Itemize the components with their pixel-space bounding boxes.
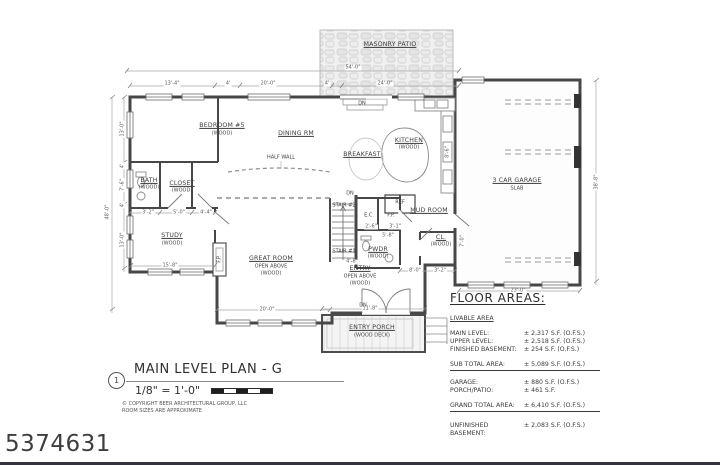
floor-areas-row: UPPER LEVEL: ± 2,518 S.F. (O.F.S.) [450,338,630,346]
room-label-masonry-patio: MASONRY PATIO [364,42,417,48]
dim-label: 38'-8" [595,173,600,190]
fa-value: ± 2,083 S.F. (O.F.S.) [524,422,585,438]
stair1-note: STAIR #1 [332,250,355,255]
title-block: 1 MAIN LEVEL PLAN - G 1/8" = 1'-0" © COP… [108,362,358,420]
fa-value: ± 880 S.F. (O.F.S.) [524,379,579,387]
fa-label: FINISHED BASEMENT: [450,346,524,354]
floor-note: (WOOD) [172,189,193,194]
approx-note: ROOM SIZES ARE APPROXIMATE [122,408,202,414]
floor-note: (WOOD) [368,255,389,260]
stair2-note: STAIR #2 [332,204,355,209]
floor-areas-row: MAIN LEVEL: ± 2,317 S.F. (O.F.S.) [450,330,630,338]
floor-note: SLAB [511,187,524,192]
floor-note: (WOOD) [399,146,420,151]
detail-number-circle: 1 [108,372,125,389]
fa-value: ± 2,317 S.F. (O.F.S.) [524,330,585,338]
copyright-line: © COPYRIGHT BEER ARCHITECTURAL GROUP, LL… [122,401,247,407]
dim-label: 7'-0" [461,234,466,248]
fa-value: ± 461 S.F. [524,387,555,395]
title-underline [126,381,344,382]
floor-areas-row: GARAGE: ± 880 S.F. (O.F.S.) [450,379,630,387]
dn-note: DN [346,192,354,197]
floor-note: (WOOD) [261,272,282,277]
dim-label: 4'-8" [345,260,359,265]
floor-areas-row: FINISHED BASEMENT: ± 254 S.F. (O.F.S.) [450,346,630,354]
fa-label: UNFINISHED BASEMENT: [450,422,524,438]
fa-value: ± 6,410 S.F. (O.F.S.) [524,402,585,410]
room-label-breakfast: BREAKFAST [343,152,380,158]
floor-note: (WOOD) [162,242,183,247]
floor-areas-grand-total-row: GRAND TOTAL AREA: ± 6,410 S.F. (O.F.S.) [450,402,600,412]
ec-note: E.C. [364,214,374,219]
dim-label: 13'-4" [163,82,180,87]
room-label-dining: DINING RM [278,131,314,137]
room-label-closet: CLOSET [169,181,194,187]
dim-label: 5'-0" [172,211,186,216]
dim-label: 3'-2" [433,269,447,274]
dim-label: 8'-6" [446,145,451,159]
fp-closet-note: F.P. [387,214,395,219]
dim-label: 4' [121,202,126,209]
fa-label: UPPER LEVEL: [450,338,524,346]
floor-note: (WOOD) [350,282,371,287]
open-above-note: OPEN ABOVE [255,265,288,270]
room-label-entry-porch: ENTRY PORCH [349,325,395,331]
plan-scale: 1/8" = 1'-0" [135,384,200,397]
dn-note: DN [358,102,366,107]
fa-value: ± 5,089 S.F. (O.F.S.) [524,361,585,369]
open-above-dashes [217,168,330,198]
fireplace-note: F.P. [218,255,223,263]
dim-label: 20'-0" [259,82,276,87]
dim-label: 5'-8" [381,234,395,239]
drawing-sheet: MASONRY PATIOBEDROOM #5(WOOD)DINING RMBR… [0,0,720,465]
fa-label: GARAGE: [450,379,524,387]
dim-label: 7'-6" [121,178,126,192]
room-label-kitchen: KITCHEN [395,138,423,144]
room-label-bedroom5: BEDROOM #5 [199,123,244,129]
dim-label: 8'-0" [408,269,422,274]
room-label-garage: 3 CAR GARAGE [492,178,541,184]
dim-label: 13'-0" [121,120,126,137]
dim-label: 3'-2" [141,211,155,216]
floor-note: (WOOD) [431,243,452,248]
floor-areas-subheading: LIVABLE AREA [450,315,630,322]
plan-title: MAIN LEVEL PLAN - G [134,362,282,377]
fa-value: ± 254 S.F. (O.F.S.) [524,346,579,354]
floor-areas-heading: FLOOR AREAS: [450,291,630,305]
dim-label: 4' [324,82,331,87]
dim-label: 15'-8" [161,264,178,269]
floor-note: (WOOD) [139,186,160,191]
floor-areas-row: PORCH/PATIO: ± 461 S.F. [450,387,630,395]
fa-label: SUB TOTAL AREA: [450,361,524,369]
listing-watermark: 5374631 [5,431,111,457]
detail-number: 1 [114,376,119,385]
dim-label: 11'-8" [361,307,378,312]
fa-label: GRAND TOTAL AREA: [450,402,524,410]
room-label-great-room: GREAT ROOM [249,256,293,262]
room-label-bath: BATH [140,178,157,184]
floor-note: (WOOD DECK) [354,334,390,339]
fa-value: ± 2,518 S.F. (O.F.S.) [524,338,585,346]
dim-label: 20'-0" [258,308,275,313]
dim-label: 24'-0" [376,82,393,87]
room-label-cl: CL. [436,235,446,241]
dim-label: 54'-0" [344,66,361,71]
room-label-study: STUDY [161,233,182,239]
floor-areas-panel: FLOOR AREAS: LIVABLE AREA MAIN LEVEL: ± … [450,291,630,438]
scale-bar [211,388,273,394]
room-label-mud-room: MUD ROOM [410,208,448,214]
dim-label: 48'-0" [106,203,111,220]
ref-note: REF [395,201,405,206]
dim-label: 4' [225,82,232,87]
floor-areas-basement-row: UNFINISHED BASEMENT: ± 2,083 S.F. (O.F.S… [450,422,630,438]
floor-note: (WOOD) [212,132,233,137]
dim-label: 13'-0" [121,231,126,248]
floor-areas-subtotal-row: SUB TOTAL AREA: ± 5,089 S.F. (O.F.S.) [450,361,600,371]
fa-label: MAIN LEVEL: [450,330,524,338]
dim-label: 2'-6" [364,225,378,230]
dim-label: 4'-4" [199,211,213,216]
room-label-entry: ENTRY [350,266,371,272]
fa-label: PORCH/PATIO: [450,387,524,395]
room-label-powder: PWDR [368,247,388,253]
half-wall-note: HALF WALL [267,156,295,161]
dim-label: 4' [121,163,126,170]
dim-label: 3'-1" [388,225,402,230]
open-above-note: OPEN ABOVE [344,275,377,280]
